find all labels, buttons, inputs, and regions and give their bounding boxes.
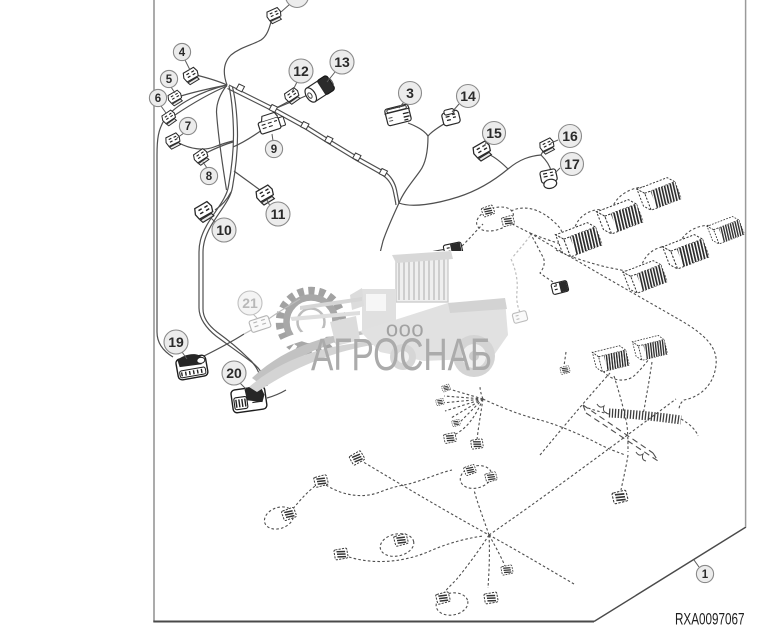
svg-text:5: 5 [166, 74, 173, 86]
svg-text:1: 1 [702, 569, 709, 581]
svg-text:15: 15 [486, 125, 502, 141]
svg-text:7: 7 [185, 121, 191, 133]
svg-text:14: 14 [460, 88, 476, 104]
svg-text:16: 16 [562, 128, 578, 144]
svg-text:3: 3 [406, 85, 414, 101]
svg-text:6: 6 [155, 93, 161, 105]
svg-text:21: 21 [242, 295, 258, 311]
svg-text:10: 10 [216, 222, 232, 238]
svg-text:RXA0097067: RXA0097067 [675, 610, 745, 629]
svg-text:12: 12 [293, 63, 309, 79]
svg-text:20: 20 [226, 365, 242, 381]
svg-text:8: 8 [206, 171, 213, 183]
svg-text:4: 4 [179, 47, 186, 59]
svg-text:17: 17 [564, 156, 580, 172]
svg-text:19: 19 [168, 334, 184, 350]
svg-text:13: 13 [334, 54, 350, 70]
svg-text:АГРОСНАБ: АГРОСНАБ [311, 329, 492, 380]
svg-text:9: 9 [271, 144, 277, 156]
svg-text:11: 11 [271, 206, 286, 222]
